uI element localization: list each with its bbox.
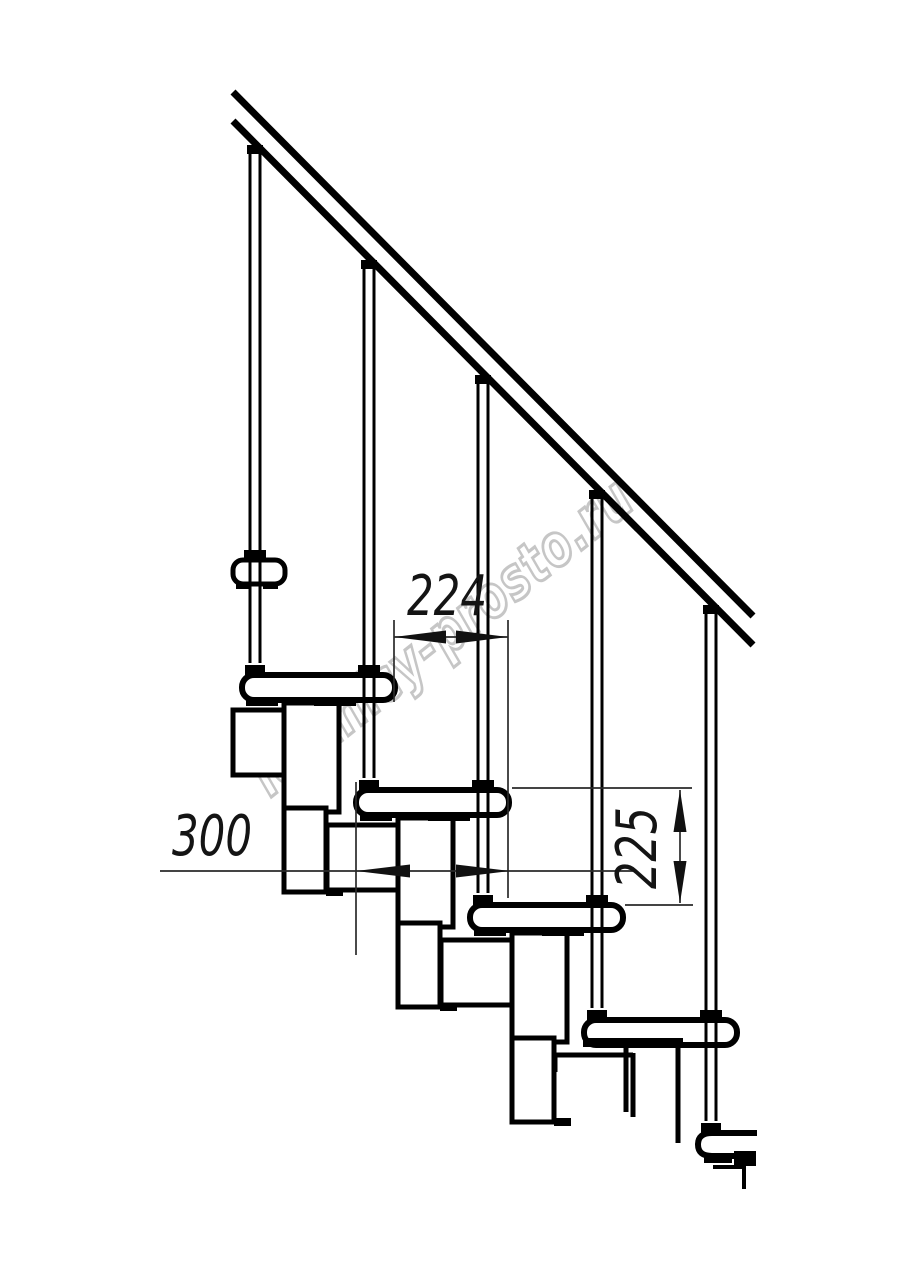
module-junction-pad [326,888,343,896]
floor-cut-line [713,1167,744,1189]
tread-pad [246,698,278,706]
module-junction-pad [440,1003,457,1011]
dimension-label-riser-height: 225 [605,807,670,889]
baluster-foot-connector [359,780,379,790]
module-box [327,825,405,890]
drawing-canvas: lestnicy-prosto.ru 224 300 225 [0,0,914,1280]
tread-pad [542,928,584,936]
tread-pad [704,1155,732,1163]
module-box [441,940,519,1005]
baluster-foot-connector [473,895,493,905]
tread-pad [734,1151,756,1166]
tread-pad [263,582,278,589]
tread-pad [474,928,506,936]
tread [242,675,395,700]
tread-pad [236,582,250,589]
module-box [284,703,339,812]
module-box [398,923,440,1007]
baluster-tread-collar [586,895,608,905]
module-box [512,1038,554,1122]
tread-pad [314,698,356,706]
module-box [512,933,567,1042]
staircase-technical-drawing: lestnicy-prosto.ru 224 300 225 [0,0,914,1280]
module-junction-pad [554,1118,571,1126]
dimension-label-step-run: 224 [407,564,487,629]
baluster-foot-connector [245,665,265,675]
baluster-foot-connector [587,1010,607,1020]
tread [356,790,509,815]
baluster-tread-collar [358,665,380,675]
tread-pad [428,813,470,821]
dimension-label-tread-depth: 300 [172,804,252,869]
baluster-foot-connector [701,1123,721,1133]
handrail-top-line [233,92,753,616]
baluster-tread-collar [700,1010,722,1020]
module-box [284,808,326,892]
dimension-arrowhead [456,865,510,878]
dimension-arrowhead [674,790,687,832]
baluster-tread-collar [244,550,266,560]
tread-pad [583,1038,683,1047]
tread-pad [360,813,392,821]
tread [470,905,623,930]
baluster-tread-collar [472,780,494,790]
dimension-arrowhead [674,861,687,903]
